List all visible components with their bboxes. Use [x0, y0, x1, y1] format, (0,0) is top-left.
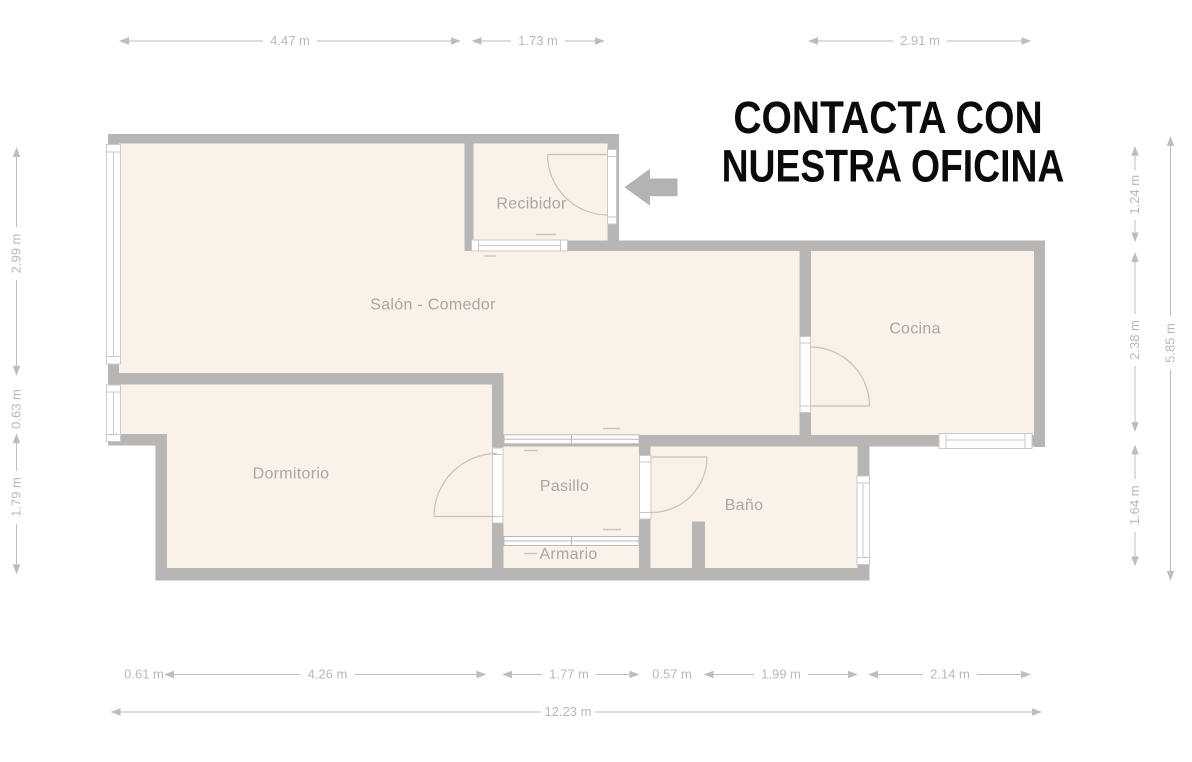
svg-text:2.14 m: 2.14 m [930, 667, 970, 682]
svg-text:0.63 m: 0.63 m [9, 389, 24, 429]
svg-text:Salón - Comedor: Salón - Comedor [370, 297, 496, 314]
svg-text:1.99 m: 1.99 m [761, 667, 801, 682]
svg-text:Cocina: Cocina [889, 321, 941, 338]
svg-text:12.23 m: 12.23 m [545, 704, 592, 719]
svg-text:0.57 m: 0.57 m [652, 667, 692, 682]
svg-text:Pasillo: Pasillo [540, 478, 589, 495]
svg-text:2.38 m: 2.38 m [1127, 320, 1142, 360]
svg-text:CONTACTA CON: CONTACTA CON [733, 92, 1042, 142]
svg-text:0.61 m: 0.61 m [124, 667, 164, 682]
svg-text:Dormitorio: Dormitorio [253, 466, 330, 483]
svg-text:2.91 m: 2.91 m [900, 33, 940, 48]
svg-text:1.24 m: 1.24 m [1127, 175, 1142, 215]
svg-text:1.79 m: 1.79 m [9, 477, 24, 517]
svg-text:1.64 m: 1.64 m [1127, 485, 1142, 525]
svg-text:4.26 m: 4.26 m [308, 667, 348, 682]
svg-text:1.77 m: 1.77 m [549, 667, 589, 682]
svg-text:2.99 m: 2.99 m [9, 234, 24, 274]
svg-text:4.47 m: 4.47 m [270, 33, 310, 48]
svg-text:NUESTRA OFICINA: NUESTRA OFICINA [722, 140, 1065, 191]
svg-text:Baño: Baño [725, 497, 764, 514]
svg-text:Armario: Armario [539, 546, 597, 563]
svg-text:1.73 m: 1.73 m [518, 33, 558, 48]
svg-text:Recibidor: Recibidor [496, 196, 567, 213]
svg-text:5.85 m: 5.85 m [1163, 323, 1178, 363]
